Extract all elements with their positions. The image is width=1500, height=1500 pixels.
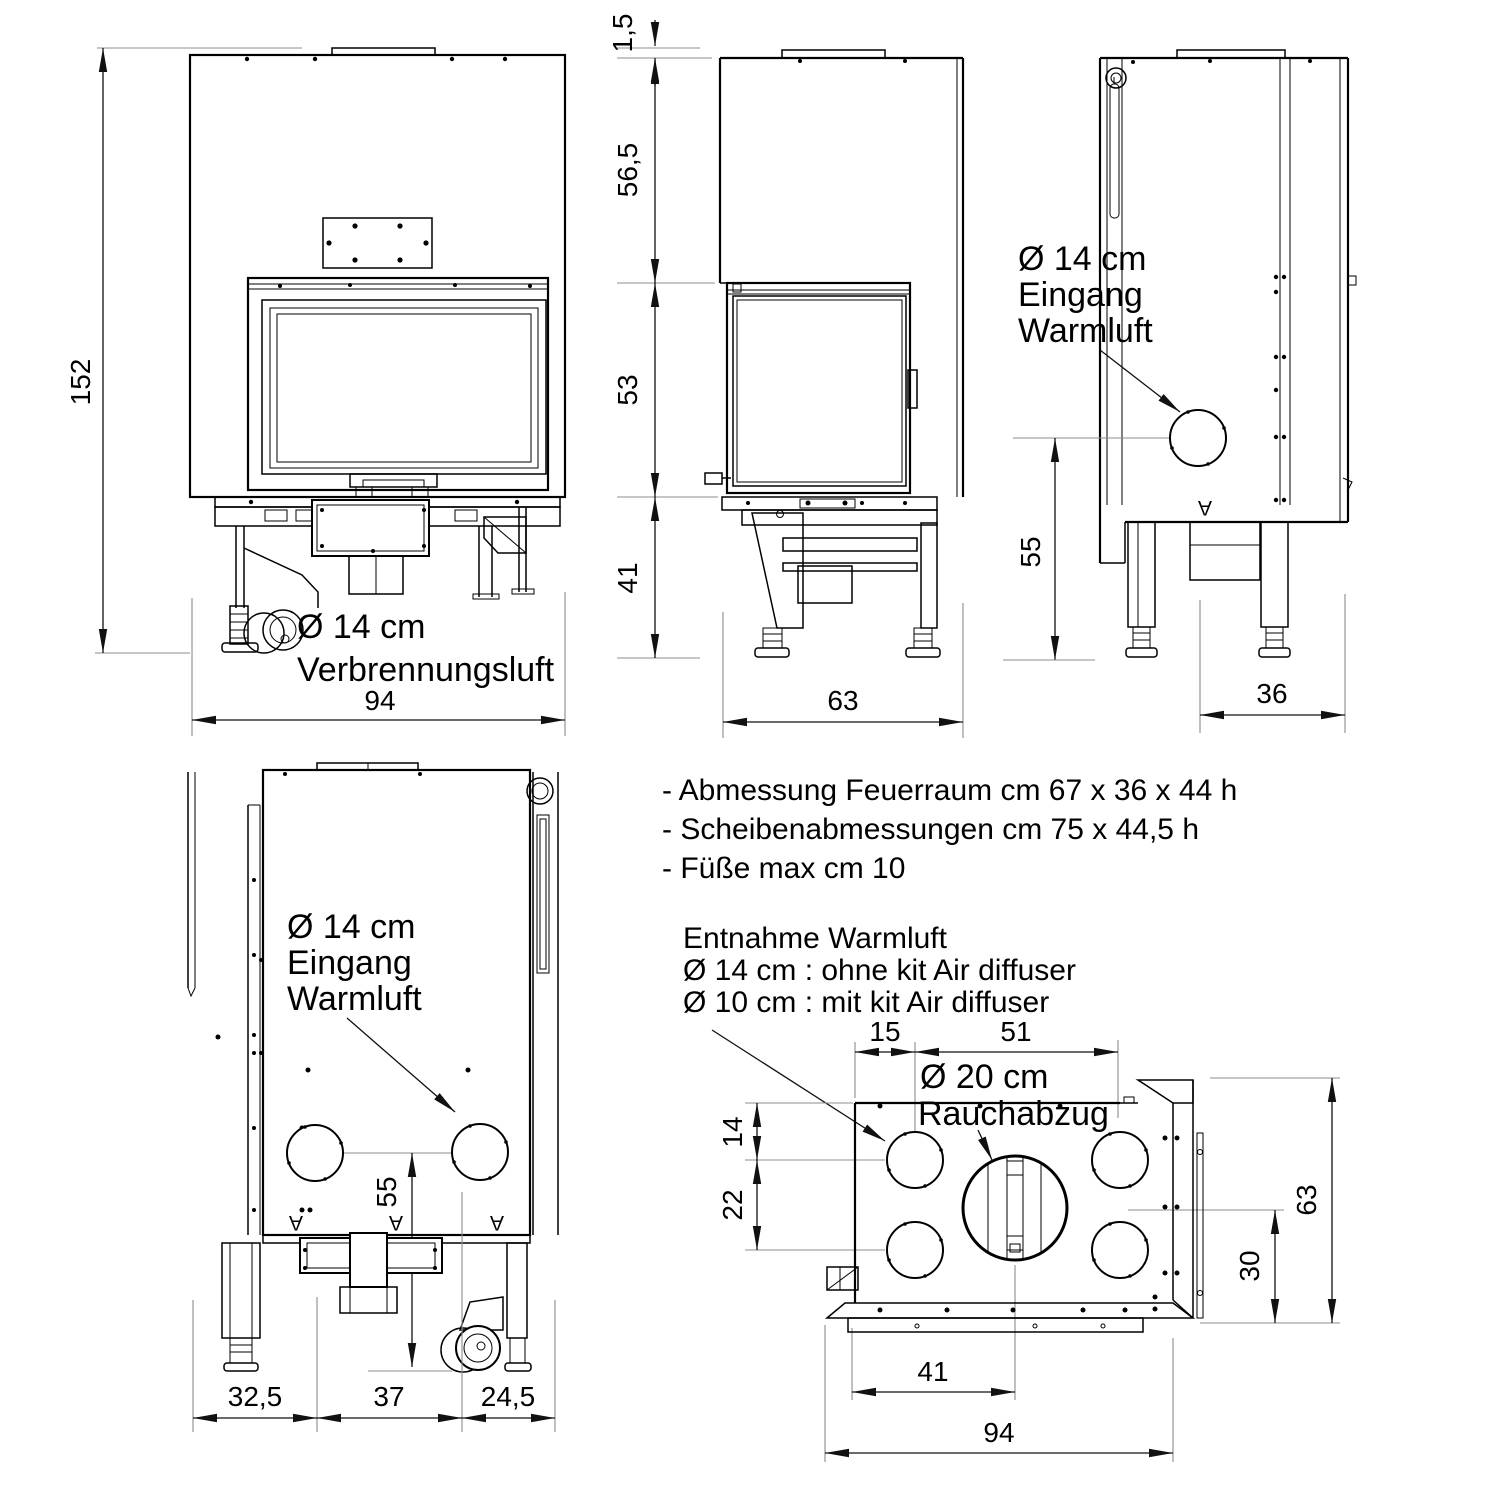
caster-wheel bbox=[244, 613, 284, 653]
dim-depth: 63 bbox=[827, 685, 858, 716]
dim-door-height: 53 bbox=[612, 374, 643, 405]
warm-air-outlet bbox=[1092, 1132, 1148, 1188]
dim-smoke-offset: 51 bbox=[1000, 1016, 1031, 1047]
center-duct bbox=[350, 1233, 387, 1287]
panel-slot bbox=[1110, 84, 1119, 218]
frame-corner bbox=[1138, 1080, 1193, 1103]
caster-bracket bbox=[460, 1297, 503, 1330]
dim-rear-span: 30 bbox=[1234, 1250, 1265, 1281]
section-mark: A bbox=[389, 1211, 403, 1234]
dim-base-height: 41 bbox=[612, 562, 643, 593]
glass-pane bbox=[262, 300, 546, 474]
side-door bbox=[727, 283, 910, 493]
side-rear-leg bbox=[921, 523, 937, 628]
leg bbox=[1261, 522, 1288, 627]
warm-air-outlet bbox=[1092, 1222, 1148, 1278]
right-flue-stub bbox=[1177, 50, 1285, 58]
dim-overall-height: 152 bbox=[65, 359, 96, 406]
warm-air-label-line2: Eingang bbox=[1018, 276, 1143, 314]
fireplace-dimension-drawing: 152 94 bbox=[0, 0, 1500, 1500]
front-body bbox=[190, 55, 565, 497]
warm-air-label-line1: Ø 14 cm bbox=[287, 908, 415, 946]
dim-overall-width: 94 bbox=[983, 1417, 1014, 1448]
warm-air-inlet-circle-right bbox=[452, 1124, 508, 1180]
warm-air-extraction-title: Entnahme Warmluft bbox=[683, 922, 948, 955]
spec-item-glass: - Scheibenabmessungen cm 75 x 44,5 h bbox=[662, 813, 1199, 846]
front-view: 152 94 bbox=[65, 48, 565, 736]
section-mark: A bbox=[289, 1211, 303, 1234]
warm-air-extraction-option2: Ø 10 cm : mit kit Air diffuser bbox=[683, 986, 1049, 1019]
leg bbox=[1128, 522, 1155, 627]
dim-smoke-center-offset: 41 bbox=[917, 1356, 948, 1387]
dim-right-offset: 24,5 bbox=[481, 1381, 536, 1412]
dim-top-plate: 1,5 bbox=[607, 14, 638, 53]
section-mark: A bbox=[490, 1211, 504, 1234]
side-flue-stub bbox=[782, 50, 885, 58]
section-mark: A bbox=[1198, 496, 1212, 519]
rear-left-leg bbox=[222, 1243, 260, 1338]
warm-air-label-line3: Warmluft bbox=[1018, 312, 1153, 350]
access-plate bbox=[323, 218, 432, 268]
warm-air-inlet-circle-left bbox=[287, 1125, 343, 1181]
dim-left-offset: 32,5 bbox=[228, 1381, 283, 1412]
leader-warm-air bbox=[1100, 350, 1180, 412]
warm-air-inlet-circle bbox=[1170, 410, 1226, 466]
technical-drawing-page: 152 94 bbox=[0, 0, 1500, 1500]
smoke-outlet-label-line2: Rauchabzug bbox=[918, 1095, 1109, 1133]
ash-drawer bbox=[312, 500, 429, 556]
rear-right-leg bbox=[507, 1243, 527, 1338]
warm-air-label-line2: Eingang bbox=[287, 944, 412, 982]
dim-inlet-front-offset: 14 bbox=[717, 1116, 748, 1147]
dim-hood-height: 56,5 bbox=[612, 143, 643, 198]
smoke-outlet-label-line1: Ø 20 cm bbox=[920, 1058, 1048, 1096]
dim-inlet-height: 55 bbox=[1015, 536, 1046, 567]
right-side-view: A Ø 14 cm Eingang Warmluft 55 36 bbox=[1003, 50, 1356, 733]
spec-item-feet: - Füße max cm 10 bbox=[662, 852, 905, 885]
warm-air-outlet bbox=[887, 1222, 943, 1278]
warm-air-label-line3: Warmluft bbox=[287, 980, 422, 1018]
spec-item-firebox: - Abmessung Feuerraum cm 67 x 36 x 44 h bbox=[662, 774, 1237, 807]
warm-air-label-line1: Ø 14 cm bbox=[1018, 240, 1146, 278]
pulley bbox=[1106, 68, 1126, 88]
dim-inlet-spacing: 22 bbox=[717, 1189, 748, 1220]
leader-smoke-outlet bbox=[978, 1130, 992, 1160]
warm-air-extraction-option1: Ø 14 cm : ohne kit Air diffuser bbox=[683, 954, 1076, 987]
rear-view: A A A Ø 14 cm Eingang Warmluft 55 bbox=[188, 763, 558, 1432]
combustion-air-label-line2: Verbrennungsluft bbox=[297, 651, 555, 689]
dim-front-offset: 15 bbox=[869, 1016, 900, 1047]
top-view: 15 51 Ø 20 cm Rauchabzug 14 22 63 30 41 … bbox=[717, 1016, 1340, 1462]
dim-overall-width: 94 bbox=[364, 685, 395, 716]
dim-rear-depth: 36 bbox=[1256, 678, 1287, 709]
door-frame bbox=[248, 278, 548, 490]
warm-air-outlet bbox=[887, 1132, 943, 1188]
dim-inlet-height: 55 bbox=[371, 1176, 402, 1207]
dim-depth: 63 bbox=[1291, 1184, 1322, 1215]
combustion-air-label-line1: Ø 14 cm bbox=[297, 608, 425, 646]
duct-box bbox=[1190, 522, 1260, 580]
leader-warm-air bbox=[347, 1018, 455, 1112]
dim-center-span: 37 bbox=[373, 1381, 404, 1412]
panel-slot bbox=[537, 815, 549, 973]
door-knob bbox=[705, 473, 722, 484]
side-view: 1,5 56,5 53 41 63 bbox=[607, 14, 963, 738]
